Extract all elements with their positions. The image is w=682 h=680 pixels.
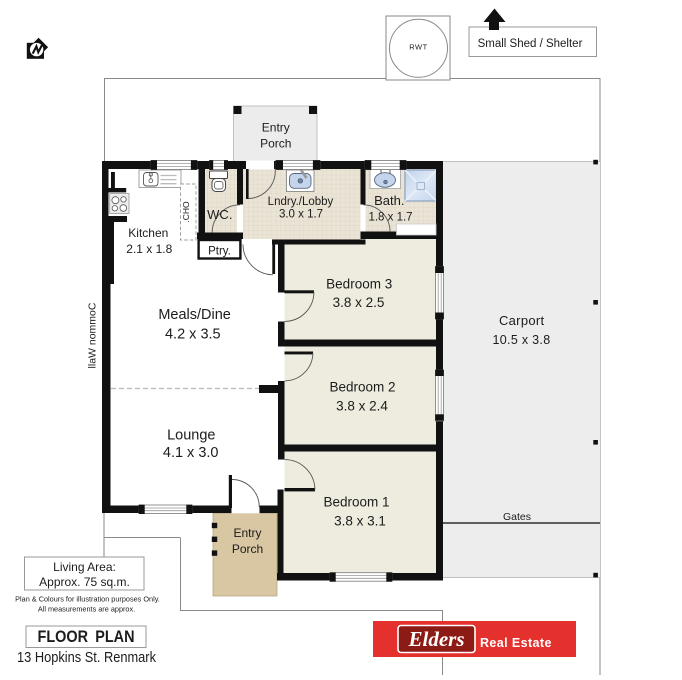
svg-text:3.8 x 2.4: 3.8 x 2.4 — [336, 399, 388, 414]
svg-text:4.2 x 3.5: 4.2 x 3.5 — [165, 327, 221, 343]
svg-text:Ptry.: Ptry. — [208, 246, 231, 258]
svg-text:3.0 x 1.7: 3.0 x 1.7 — [279, 209, 323, 221]
svg-text:3.8 x 2.5: 3.8 x 2.5 — [333, 295, 385, 310]
svg-text:All measurements are approx.: All measurements are approx. — [38, 605, 135, 614]
svg-text:WC.: WC. — [207, 207, 232, 222]
svg-text:Porch: Porch — [232, 542, 263, 556]
svg-text:Approx. 75 sq.m.: Approx. 75 sq.m. — [39, 575, 130, 589]
svg-text:Living Area:: Living Area: — [53, 560, 116, 574]
svg-text:Entry: Entry — [233, 526, 261, 540]
svg-text:Bedroom 2: Bedroom 2 — [329, 379, 395, 394]
svg-text:RWT: RWT — [409, 43, 427, 52]
svg-text:Bath.: Bath. — [374, 193, 404, 208]
svg-text:Porch: Porch — [260, 137, 291, 151]
svg-text:Bedroom 1: Bedroom 1 — [323, 495, 389, 510]
svg-text:2.1 x 1.8: 2.1 x 1.8 — [126, 242, 172, 256]
svg-text:llaW nommoC: llaW nommoC — [87, 302, 99, 368]
svg-text:Small Shed / Shelter: Small Shed / Shelter — [478, 38, 583, 50]
svg-text:4.1 x 3.0: 4.1 x 3.0 — [163, 445, 219, 461]
svg-text:Gates: Gates — [503, 511, 531, 523]
svg-text:.CHO: .CHO — [181, 201, 191, 223]
svg-text:3.8 x 3.1: 3.8 x 3.1 — [334, 513, 386, 528]
svg-text:10.5 x 3.8: 10.5 x 3.8 — [493, 333, 551, 347]
svg-text:FLOOR PLAN: FLOOR PLAN — [38, 627, 135, 646]
svg-text:Lounge: Lounge — [167, 427, 215, 443]
svg-text:Real Estate: Real Estate — [480, 636, 552, 650]
svg-text:1.8 x 1.7: 1.8 x 1.7 — [368, 211, 412, 223]
svg-text:Elders: Elders — [407, 627, 464, 651]
svg-text:Carport: Carport — [499, 313, 545, 328]
svg-text:13 Hopkins St. Renmark: 13 Hopkins St. Renmark — [17, 650, 157, 666]
svg-text:Plan & Colours for illustratio: Plan & Colours for illustration purposes… — [15, 595, 160, 604]
svg-text:Bedroom 3: Bedroom 3 — [326, 276, 392, 291]
svg-text:Meals/Dine: Meals/Dine — [158, 307, 231, 323]
svg-text:Lndry./Lobby: Lndry./Lobby — [268, 196, 334, 208]
svg-text:Kitchen: Kitchen — [128, 226, 168, 240]
svg-text:Entry: Entry — [262, 121, 290, 135]
